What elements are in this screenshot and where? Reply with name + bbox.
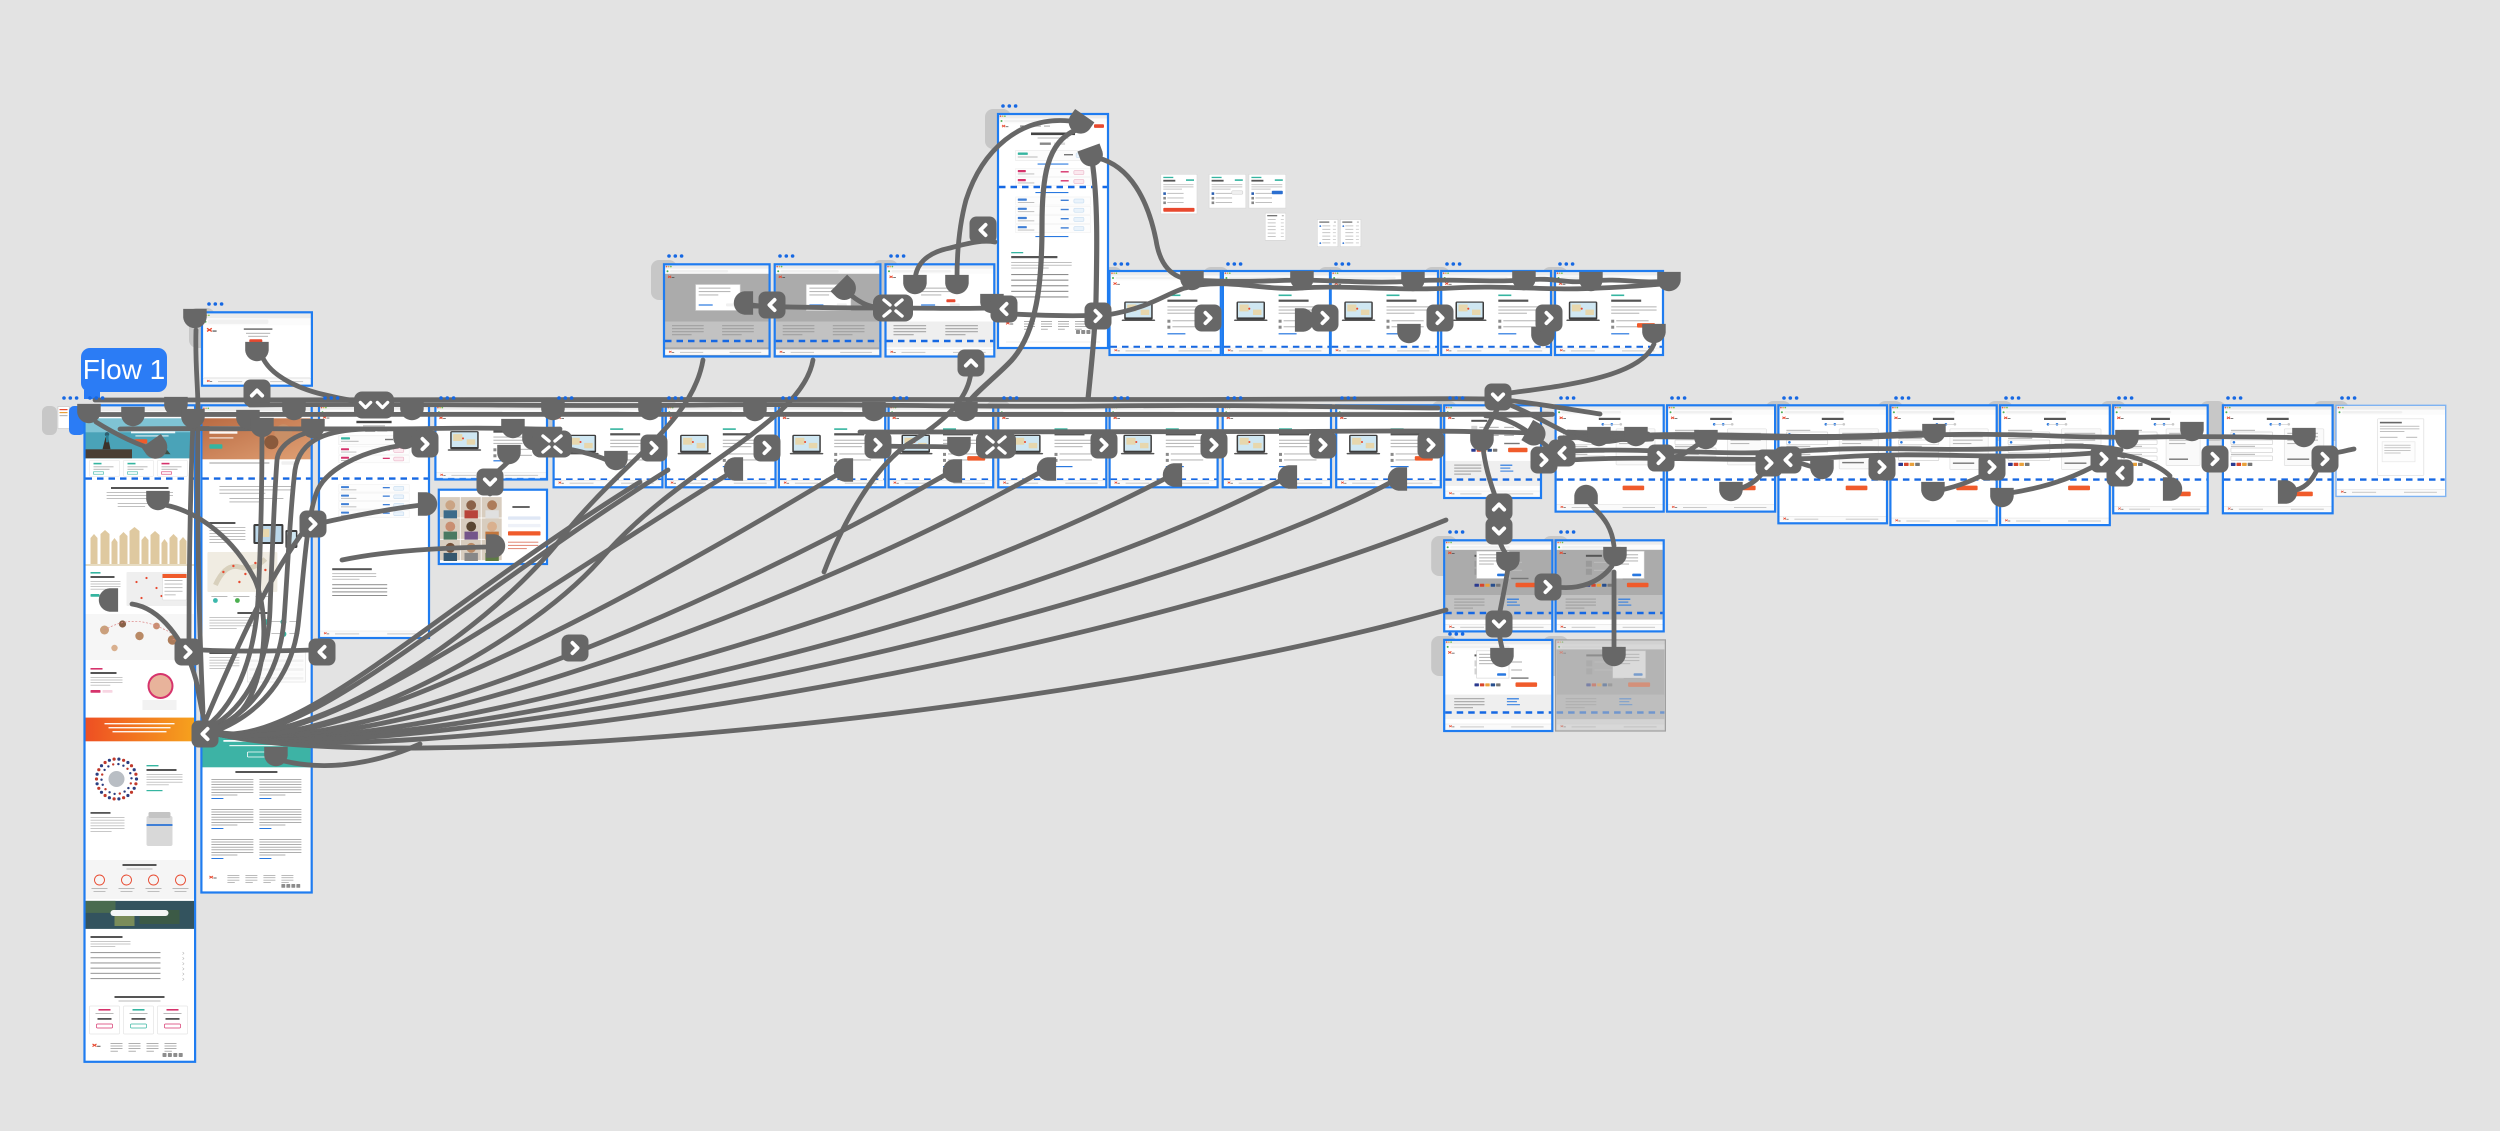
svg-text:Flow 1: Flow 1	[83, 354, 165, 385]
